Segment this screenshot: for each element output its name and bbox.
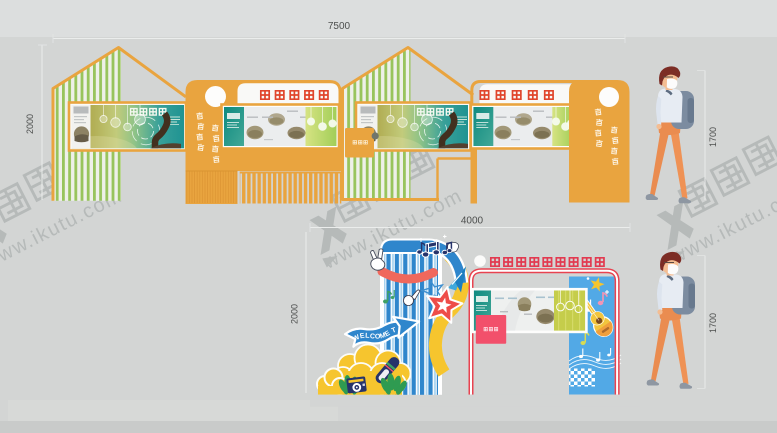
svg-text:2000: 2000 [290,304,300,324]
svg-text:1700: 1700 [708,313,718,333]
svg-text:1700: 1700 [708,127,718,147]
svg-text:4000: 4000 [461,216,484,227]
svg-text:7500: 7500 [328,21,351,32]
svg-text:2000: 2000 [25,114,35,134]
